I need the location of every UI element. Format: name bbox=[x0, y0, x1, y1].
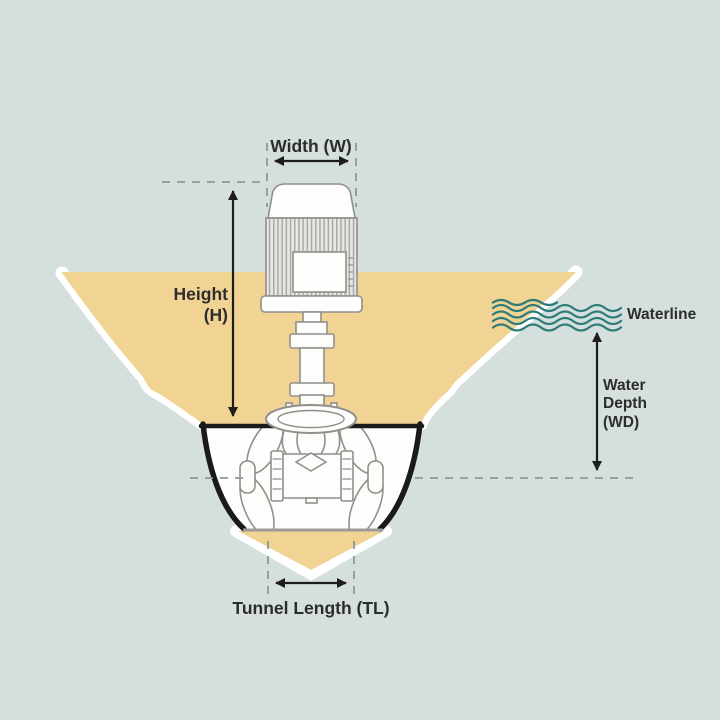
coupling-flange bbox=[290, 334, 334, 348]
propeller-hub bbox=[368, 461, 383, 493]
height-label: Height (H) bbox=[90, 284, 228, 325]
motor-nameplate bbox=[293, 252, 346, 292]
bow-thruster-installation-diagram: Width (W) Height (H) Waterline Water Dep… bbox=[0, 0, 720, 720]
water-depth-label: Water Depth (WD) bbox=[603, 377, 647, 432]
motor bbox=[261, 184, 362, 312]
width-label: Width (W) bbox=[211, 136, 411, 157]
waterline-label: Waterline bbox=[627, 306, 696, 324]
mounting-flange bbox=[266, 405, 356, 433]
motor-cap bbox=[268, 184, 355, 218]
drain-plug bbox=[306, 498, 317, 503]
motor-base-flange bbox=[261, 296, 362, 312]
tunnel-length-label: Tunnel Length (TL) bbox=[191, 598, 431, 619]
coupling-flange bbox=[290, 383, 334, 396]
keel-tip bbox=[236, 531, 386, 574]
propeller-hub bbox=[240, 461, 255, 493]
